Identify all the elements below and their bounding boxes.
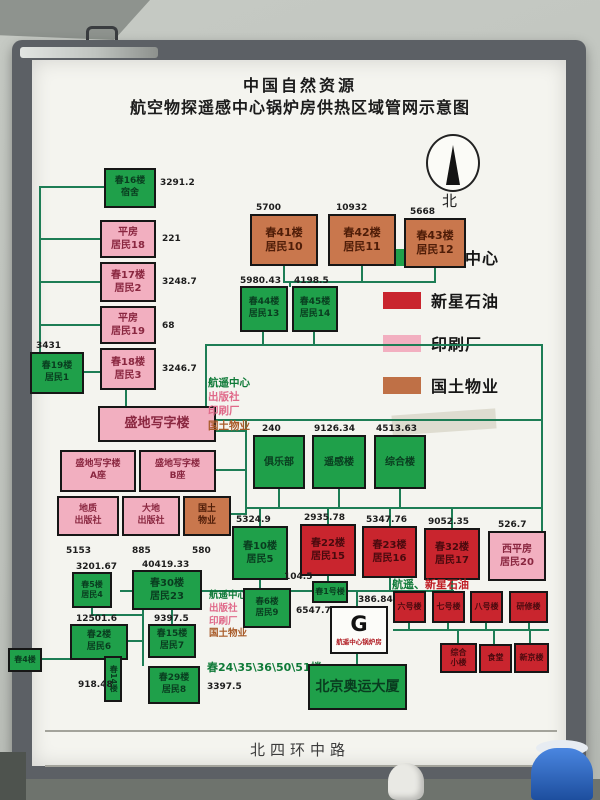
building-box-xinjing: 新京楼 — [514, 643, 549, 673]
building-label: 七号楼 — [437, 602, 461, 612]
building-box-chun4: 春4楼 — [8, 648, 42, 672]
building-label: 居民19 — [111, 325, 145, 338]
connector-line — [216, 419, 543, 421]
building-box-chun30: 春30楼居民23 — [132, 570, 202, 610]
building-label: 春43楼 — [416, 229, 453, 243]
legend-item-yinshua: 印刷厂 — [383, 331, 482, 355]
building-label: 居民8 — [162, 685, 186, 697]
building-label: 北京奥运大厦 — [316, 678, 400, 696]
value-chun32: 9052.35 — [428, 517, 469, 527]
building-label: 春10楼 — [243, 540, 277, 553]
page-subtitle: 航空物探遥感中心锅炉房供热区域管网示意图 — [0, 94, 600, 118]
building-box-chun6: 春6楼居民9 — [243, 588, 291, 628]
connector-line — [216, 469, 247, 471]
building-label: 春1号楼 — [315, 587, 345, 597]
building-label: 居民4 — [81, 590, 103, 600]
building-label: 春22楼 — [311, 537, 345, 550]
building-box-chun17: 春17楼居民2 — [100, 262, 156, 302]
building-box-bahao: 八号楼 — [470, 591, 503, 623]
note-line: 印刷厂 — [208, 404, 250, 418]
building-label: 春17楼 — [111, 269, 145, 282]
value-chun17: 3248.7 — [162, 277, 197, 287]
cluster-label: 航遥、新星石油 — [392, 576, 469, 592]
value-chun15: 9397.5 — [154, 614, 189, 624]
connector-line — [361, 266, 363, 282]
legend-swatch-pink — [383, 335, 421, 352]
building-label: 春23楼 — [373, 539, 407, 552]
building-label: B座 — [170, 471, 186, 483]
building-label: 盛地写字楼 — [155, 459, 200, 471]
building-label: 居民23 — [150, 590, 184, 603]
building-label: 春19楼 — [42, 361, 73, 373]
connector-line — [283, 266, 285, 282]
building-label: 综合 — [451, 648, 467, 658]
value-chun5: 3201.67 — [76, 562, 117, 572]
value-chun41: 5700 — [256, 203, 281, 213]
note-block-center: 航遥中心 出版社 印刷厂 国土物业 — [208, 376, 250, 433]
connector-line — [529, 631, 531, 643]
building-label: 居民1 — [45, 373, 69, 385]
building-box-chun15: 春15楼居民7 — [148, 624, 196, 658]
note-line: 航遥中心 — [209, 590, 247, 603]
building-box-dadi-press: 大地出版社 — [122, 496, 180, 536]
building-label: 盛地写字楼 — [124, 416, 189, 433]
building-box-shengdi-a: 盛地写字楼A座 — [60, 450, 136, 492]
building-label: 居民13 — [249, 309, 280, 321]
value-chun1hao: 104.5 — [284, 572, 312, 582]
legend-item-xinxing: 新星石油 — [383, 288, 499, 312]
building-box-chun29: 春29楼居民8 — [148, 666, 200, 704]
value-chun18: 3246.7 — [162, 364, 197, 374]
building-box-yanxiu: 研修楼 — [509, 591, 548, 623]
chun-list-note: 春24\35\36\50\51楼 — [207, 659, 322, 675]
building-box-chun42: 春42楼居民11 — [328, 214, 396, 266]
value-xipingfang: 526.7 — [498, 520, 526, 530]
connector-line — [41, 281, 100, 283]
legend-swatch-brown — [383, 377, 421, 394]
building-label: 春2楼 — [87, 630, 111, 642]
connector-line — [125, 390, 127, 406]
building-label: 春4楼 — [14, 655, 36, 665]
building-label: 居民20 — [500, 556, 534, 569]
building-label: 居民17 — [435, 554, 469, 567]
building-box-shitang: 食堂 — [479, 644, 512, 673]
building-label: 春44楼 — [249, 297, 280, 309]
connector-line — [393, 629, 549, 631]
boiler-g-box: G 航遥中心锅炉房 — [330, 606, 388, 654]
building-label: 春32楼 — [435, 541, 469, 554]
value-chun2: 12501.6 — [76, 614, 117, 624]
building-label: 居民12 — [416, 243, 453, 257]
road-line — [45, 765, 557, 767]
building-label: 八号楼 — [475, 602, 499, 612]
compass-icon — [426, 134, 480, 192]
boiler-letter: G — [350, 614, 367, 635]
connector-line — [128, 640, 144, 642]
value-chun14: 918.48 — [78, 680, 113, 690]
building-label: 居民2 — [115, 282, 142, 295]
building-box-chun18: 春18楼居民3 — [100, 348, 156, 390]
white-cup — [388, 763, 424, 800]
building-label: 新京楼 — [520, 653, 544, 663]
building-label: 春6楼 — [256, 597, 279, 608]
building-box-pingfang19: 平房居民19 — [100, 306, 156, 344]
building-box-shengdi: 盛地写字楼 — [98, 406, 216, 442]
building-box-liuhao: 六号楼 — [393, 591, 426, 623]
value-zonghe: 4513.63 — [376, 424, 417, 434]
value-pingfang19: 68 — [162, 321, 175, 331]
connector-line — [338, 489, 340, 509]
connector-line — [205, 344, 543, 346]
building-label: 地质 — [79, 504, 97, 516]
building-label: 平房 — [118, 226, 138, 239]
value-g-inflow: 386.84 — [358, 595, 393, 605]
building-label: 春41楼 — [265, 226, 302, 240]
building-box-zonghexiaolou: 综合小楼 — [440, 643, 477, 673]
building-label: 春5楼 — [81, 580, 103, 590]
note-line: 出版社 — [209, 603, 247, 616]
building-label: 居民6 — [87, 642, 111, 654]
value-chun43: 5668 — [410, 207, 435, 217]
building-label: 春29楼 — [159, 673, 190, 685]
building-box-chun45: 春45楼居民14 — [292, 286, 338, 332]
connector-line — [41, 186, 104, 188]
connector-line — [84, 371, 100, 373]
building-label: 居民9 — [256, 608, 279, 619]
boiler-label: 航遥中心锅炉房 — [336, 638, 382, 646]
building-box-chun44: 春44楼居民13 — [240, 286, 288, 332]
value-chun-list: 3397.5 — [207, 682, 242, 692]
value-guotu: 580 — [192, 546, 211, 556]
value-chun23: 5347.76 — [366, 515, 407, 525]
connector-line — [142, 610, 144, 666]
building-label: 大地 — [142, 504, 160, 516]
frame-metal-strip — [20, 47, 158, 58]
building-label: 宿舍 — [121, 188, 139, 200]
building-label: 俱乐部 — [264, 456, 294, 469]
connector-line — [278, 489, 280, 509]
connector-line — [245, 419, 247, 515]
connector-line — [41, 324, 100, 326]
building-label: 居民15 — [311, 550, 345, 563]
connector-line — [541, 346, 543, 532]
board-tray — [0, 779, 600, 800]
value-yaogan: 9126.34 — [314, 424, 355, 434]
connector-line — [434, 268, 436, 282]
building-box-chun22: 春22楼居民15 — [300, 524, 356, 576]
value-chun6: 6547.7 — [296, 606, 331, 616]
page-title: 中国自然资源 — [0, 72, 600, 96]
building-box-chun10: 春10楼居民5 — [232, 526, 288, 580]
building-label: 居民18 — [111, 239, 145, 252]
photo-scene: 中国自然资源 航空物探遥感中心锅炉房供热区域管网示意图 北 航遥中心 新星石油 … — [0, 0, 600, 800]
building-box-chun5: 春5楼居民4 — [72, 572, 112, 608]
connector-line — [41, 238, 100, 240]
legend-swatch-red — [383, 292, 421, 309]
note-line: 航遥中心 — [208, 376, 250, 390]
note-line: 印刷厂 — [209, 616, 247, 629]
connector-line — [493, 631, 495, 644]
building-label: 出版社 — [74, 516, 101, 528]
value-chun30: 40419.33 — [142, 560, 189, 570]
connector-line — [457, 631, 459, 643]
road-label: 北四环中路 — [0, 739, 600, 760]
building-label: 春30楼 — [150, 577, 184, 590]
building-label: 居民16 — [373, 552, 407, 565]
building-box-yaogan: 遥感楼 — [312, 435, 366, 489]
building-label: 遥感楼 — [324, 456, 354, 469]
value-chun10: 5324.9 — [236, 515, 271, 525]
building-label: 国土 — [198, 504, 216, 516]
building-label: A座 — [90, 471, 106, 483]
building-label: 盛地写字楼 — [75, 459, 120, 471]
value-pingfang18: 221 — [162, 234, 181, 244]
building-box-pingfang18: 平房居民18 — [100, 220, 156, 258]
building-box-qihao: 七号楼 — [432, 591, 465, 623]
value-julebu: 240 — [262, 424, 281, 434]
building-box-chun14: 春14楼 — [104, 656, 122, 702]
note-line: 国土物业 — [208, 419, 250, 433]
building-label: 居民5 — [247, 553, 274, 566]
building-label: 小楼 — [451, 658, 467, 668]
value-dadi: 885 — [132, 546, 151, 556]
legend-label: 国土物业 — [431, 373, 499, 397]
building-box-xipingfang: 西平房居民20 — [488, 531, 546, 581]
connector-line — [399, 489, 401, 509]
building-box-chun2: 春2楼居民6 — [70, 624, 128, 660]
building-label: 居民7 — [160, 641, 184, 653]
building-box-chun41: 春41楼居民10 — [250, 214, 318, 266]
building-box-chun16: 春16楼宿舍 — [104, 168, 156, 208]
building-box-chun32: 春32楼居民17 — [424, 528, 480, 580]
building-label: 居民10 — [265, 240, 302, 254]
building-box-chun1hao: 春1号楼 — [312, 581, 348, 603]
wall-shadow — [0, 0, 150, 40]
north-label: 北 — [442, 190, 457, 211]
cluster-label-red: 新星石油 — [425, 578, 469, 591]
building-label: 居民3 — [115, 369, 142, 382]
building-label: 综合楼 — [385, 456, 415, 469]
value-chun42: 10932 — [336, 203, 367, 213]
building-box-chun19: 春19楼居民1 — [30, 352, 84, 394]
blue-cup — [531, 748, 593, 800]
value-dizhi: 5153 — [66, 546, 91, 556]
building-label: 居民14 — [300, 309, 331, 321]
building-box-chun23: 春23楼居民16 — [362, 526, 417, 578]
building-label: 物业 — [198, 516, 216, 528]
building-label: 春15楼 — [157, 629, 188, 641]
building-box-dizhi-press: 地质出版社 — [57, 496, 119, 536]
building-label: 食堂 — [488, 653, 504, 663]
building-label: 居民11 — [343, 240, 380, 254]
building-box-zonghe: 综合楼 — [374, 435, 426, 489]
connector-line — [39, 186, 41, 356]
building-box-shengdi-b: 盛地写字楼B座 — [139, 450, 216, 492]
road-line — [45, 730, 557, 732]
corner-shadow — [0, 752, 26, 800]
note-line: 国土物业 — [209, 628, 247, 641]
building-box-julebu: 俱乐部 — [253, 435, 305, 489]
building-label: 西平房 — [502, 543, 532, 556]
building-box-aoyun: 北京奥运大厦 — [308, 664, 407, 710]
building-label: 春18楼 — [111, 356, 145, 369]
building-label: 研修楼 — [517, 602, 541, 612]
building-label: 春16楼 — [115, 176, 146, 188]
building-label: 平房 — [118, 312, 138, 325]
legend-item-guotu: 国土物业 — [383, 373, 499, 397]
note-block-left-of-g: 航遥中心 出版社 印刷厂 国土物业 — [209, 590, 247, 641]
building-label: 春42楼 — [343, 226, 380, 240]
note-line: 出版社 — [208, 390, 250, 404]
legend-label: 新星石油 — [431, 288, 499, 312]
building-label: 春45楼 — [300, 297, 331, 309]
value-chun44: 5980.43 — [240, 276, 281, 286]
value-chun22: 2935.78 — [304, 513, 345, 523]
connector-line — [289, 283, 291, 287]
building-box-guotu-wuye: 国土物业 — [183, 496, 231, 536]
cluster-label-green: 航遥、 — [392, 578, 425, 591]
value-chun19: 3431 — [36, 341, 61, 351]
connector-line — [246, 507, 543, 509]
value-chun45: 4198.5 — [294, 276, 329, 286]
value-chun16: 3291.2 — [160, 178, 195, 188]
legend-label: 印刷厂 — [431, 331, 482, 355]
building-box-chun43: 春43楼居民12 — [404, 218, 466, 268]
building-label: 六号楼 — [398, 602, 422, 612]
north-needle-icon — [446, 145, 460, 185]
building-label: 出版社 — [137, 516, 164, 528]
